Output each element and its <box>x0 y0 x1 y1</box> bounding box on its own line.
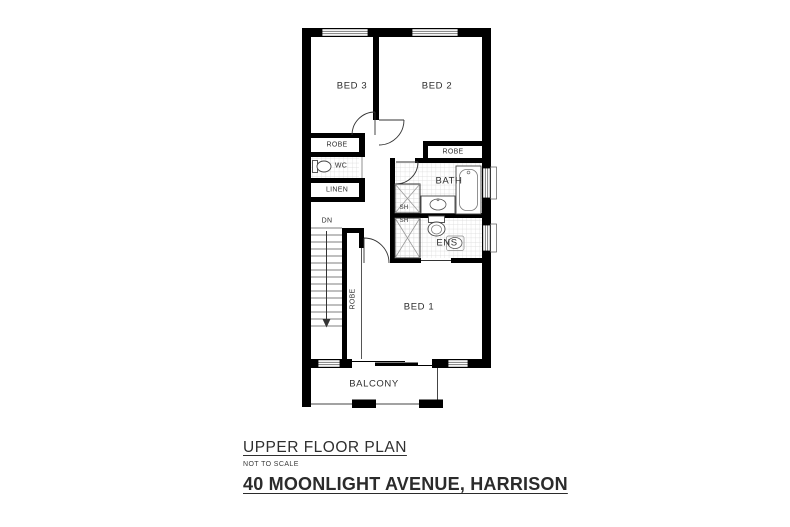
room-label-robe-bed2: ROBE <box>442 149 463 156</box>
address-title: 40 MOONLIGHT AVENUE, HARRISON <box>243 474 568 495</box>
window-bed3 <box>322 29 368 36</box>
sliding-door <box>352 359 432 368</box>
room-label-robe-bed3: ROBE <box>326 142 347 149</box>
stair-down-arrow-icon <box>323 231 331 328</box>
room-label-bed1: BED 1 <box>404 302 434 313</box>
bathtub-symbol <box>456 166 481 214</box>
door-bed3 <box>352 112 375 135</box>
room-label-ens: ENS <box>436 238 457 249</box>
door-bed1 <box>364 238 389 263</box>
title-block: UPPER FLOOR PLAN NOT TO SCALE <box>243 439 407 468</box>
door-bed2 <box>379 120 404 145</box>
window-ens <box>483 224 497 252</box>
toilet-symbol-wc <box>313 161 332 173</box>
window-bath <box>483 167 497 199</box>
window-bed1-right <box>448 360 468 367</box>
window-bed2 <box>412 29 458 36</box>
room-label-shower-bath: SH <box>400 205 409 211</box>
stairs-dn-label: DN <box>322 218 333 225</box>
room-label-robe-bed1: ROBE <box>350 288 357 309</box>
room-label-bath: BATH <box>435 176 462 187</box>
scale-note: NOT TO SCALE <box>243 461 407 468</box>
toilet-symbol-ens <box>428 216 445 236</box>
room-label-bed3: BED 3 <box>337 81 367 92</box>
room-label-balcony: BALCONY <box>349 379 399 390</box>
room-label-wc: WC <box>335 163 347 170</box>
room-label-bed2: BED 2 <box>422 81 452 92</box>
room-label-linen: LINEN <box>326 187 348 194</box>
window-bed1-left <box>318 360 340 367</box>
shower-symbol-ens <box>395 218 420 258</box>
basin-symbol-bath <box>421 196 455 214</box>
floor-plan-page: BED 3 BED 2 ROBE WC LINEN ROBE BATH SH S… <box>0 0 790 527</box>
plan-title: UPPER FLOOR PLAN <box>243 439 407 457</box>
room-label-shower-ens: SH <box>400 218 409 224</box>
